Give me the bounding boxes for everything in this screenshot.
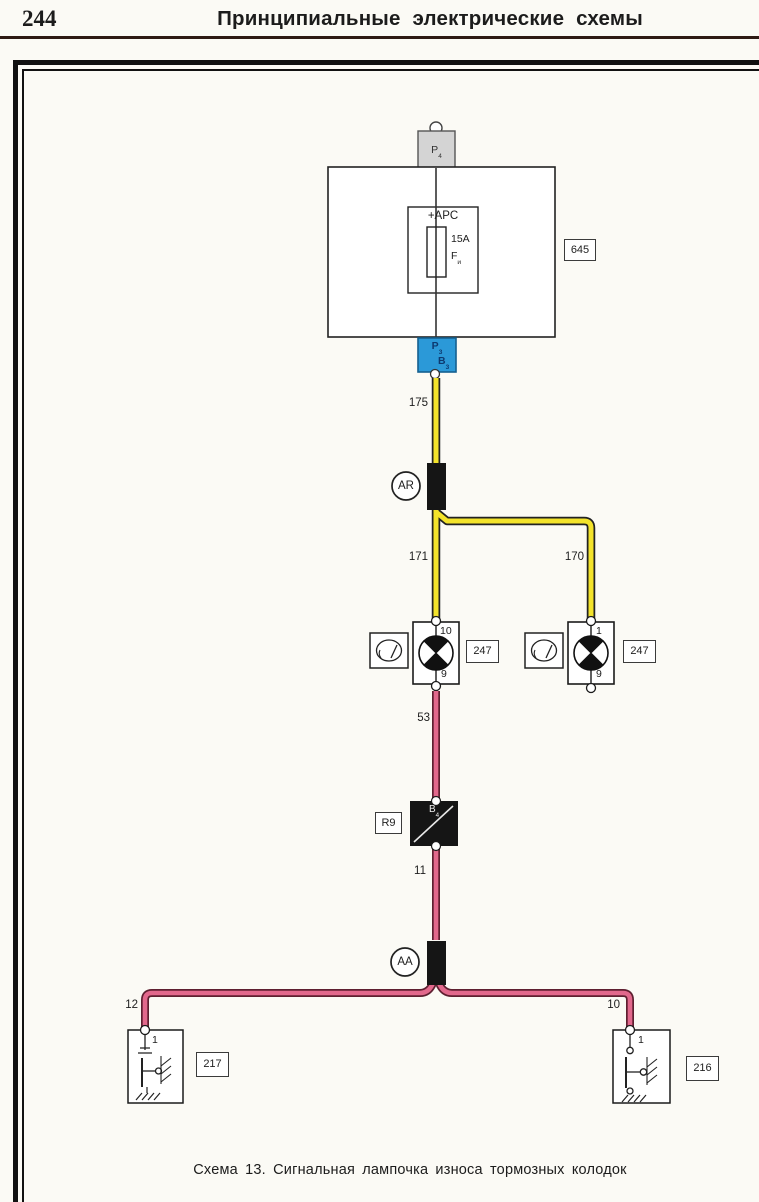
- lamp-left-pin-bottom: 9: [441, 669, 447, 680]
- sensor-right-pin: 1: [638, 1035, 644, 1046]
- fuse-name-label: Fи: [451, 251, 461, 262]
- wire-yellow-group: [436, 378, 591, 619]
- apc-supply-label: +APC: [409, 211, 477, 223]
- wire-170-label: 170: [558, 552, 584, 564]
- fuse-rating-label: 15A: [451, 234, 470, 245]
- splice-aa-block: [427, 941, 446, 985]
- unit-645-ref: 645: [564, 239, 596, 261]
- splice-ar-block: [427, 463, 446, 510]
- sensor-left-ref: 217: [196, 1052, 229, 1077]
- wire-pink-group: [145, 691, 630, 1029]
- wire-12-label: 12: [112, 1000, 138, 1012]
- connector-bump-icon: [431, 370, 440, 379]
- wire-11-label: 11: [400, 866, 426, 878]
- schematic-canvas: [0, 0, 759, 1200]
- lamp-right-unit: [568, 617, 614, 693]
- gauge-icon: [525, 633, 563, 668]
- wire-171-label: 171: [402, 552, 428, 564]
- connector-b3-label: B3: [438, 356, 449, 367]
- lamp-left-ref: 247: [466, 640, 499, 663]
- connector-p4-label: P4: [418, 145, 455, 156]
- splice-ar-label: AR: [392, 481, 420, 493]
- lamp-icon: [419, 636, 453, 670]
- connector-p3-label: P3: [418, 341, 456, 352]
- lamp-left-unit: [413, 617, 459, 691]
- wire-175-label: 175: [398, 398, 428, 410]
- splice-aa-label: AA: [391, 957, 419, 969]
- lamp-right-ref: 247: [623, 640, 656, 663]
- sensor-left-pin: 1: [152, 1035, 158, 1046]
- lamp-icon: [574, 636, 608, 670]
- wire-53-label: 53: [404, 713, 430, 725]
- lamp-right-pin-top: 1: [596, 626, 602, 637]
- gauge-icon: [370, 633, 408, 668]
- unit-b4-label: B4: [410, 805, 458, 815]
- diagram-caption: Схема 13. Сигнальная лампочка износа тор…: [60, 1163, 759, 1178]
- unit-r9-ref: R9: [375, 812, 402, 834]
- lamp-right-pin-bottom: 9: [596, 669, 602, 680]
- lamp-left-pin-top: 10: [440, 626, 452, 637]
- sensor-right-ref: 216: [686, 1056, 719, 1081]
- wire-10-label: 10: [594, 1000, 620, 1012]
